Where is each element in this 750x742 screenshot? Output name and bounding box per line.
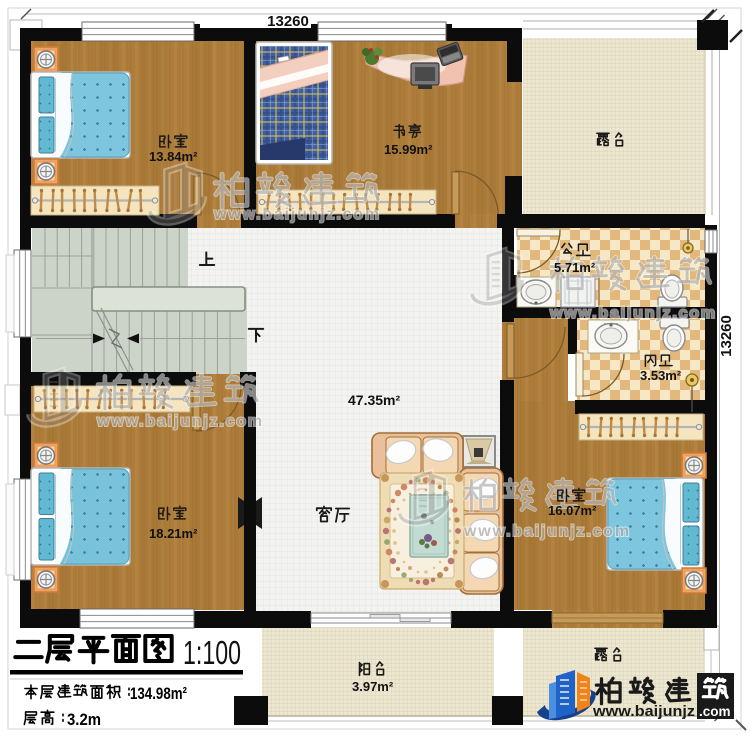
- svg-text:3.53m²: 3.53m²: [640, 368, 682, 383]
- svg-text:16.07m²: 16.07m²: [548, 503, 597, 518]
- svg-text:18.21m²: 18.21m²: [149, 526, 198, 541]
- svg-text:13260: 13260: [267, 13, 309, 30]
- svg-text:www.baijunjz.com: www.baijunjz.com: [213, 206, 381, 223]
- svg-text:5.71m²: 5.71m²: [554, 260, 596, 275]
- svg-text:1:100: 1:100: [183, 634, 241, 671]
- svg-text:www.baijunjz.com: www.baijunjz.com: [96, 413, 264, 430]
- svg-text:13260: 13260: [718, 315, 735, 357]
- svg-text:13.84m²: 13.84m²: [149, 149, 198, 164]
- svg-text:3.97m²: 3.97m²: [352, 679, 394, 694]
- svg-text:3.2m: 3.2m: [67, 710, 101, 729]
- svg-text:134.98m²: 134.98m²: [130, 684, 187, 703]
- svg-text:www.baijunjz.com: www.baijunjz.com: [463, 523, 631, 540]
- svg-text:47.35m²: 47.35m²: [348, 392, 400, 408]
- svg-text:.com: .com: [699, 704, 731, 719]
- svg-text:www.baijunjz: www.baijunjz: [592, 703, 695, 720]
- svg-text:15.99m²: 15.99m²: [384, 142, 433, 157]
- svg-text:www.baijunjz.com: www.baijunjz.com: [549, 305, 717, 322]
